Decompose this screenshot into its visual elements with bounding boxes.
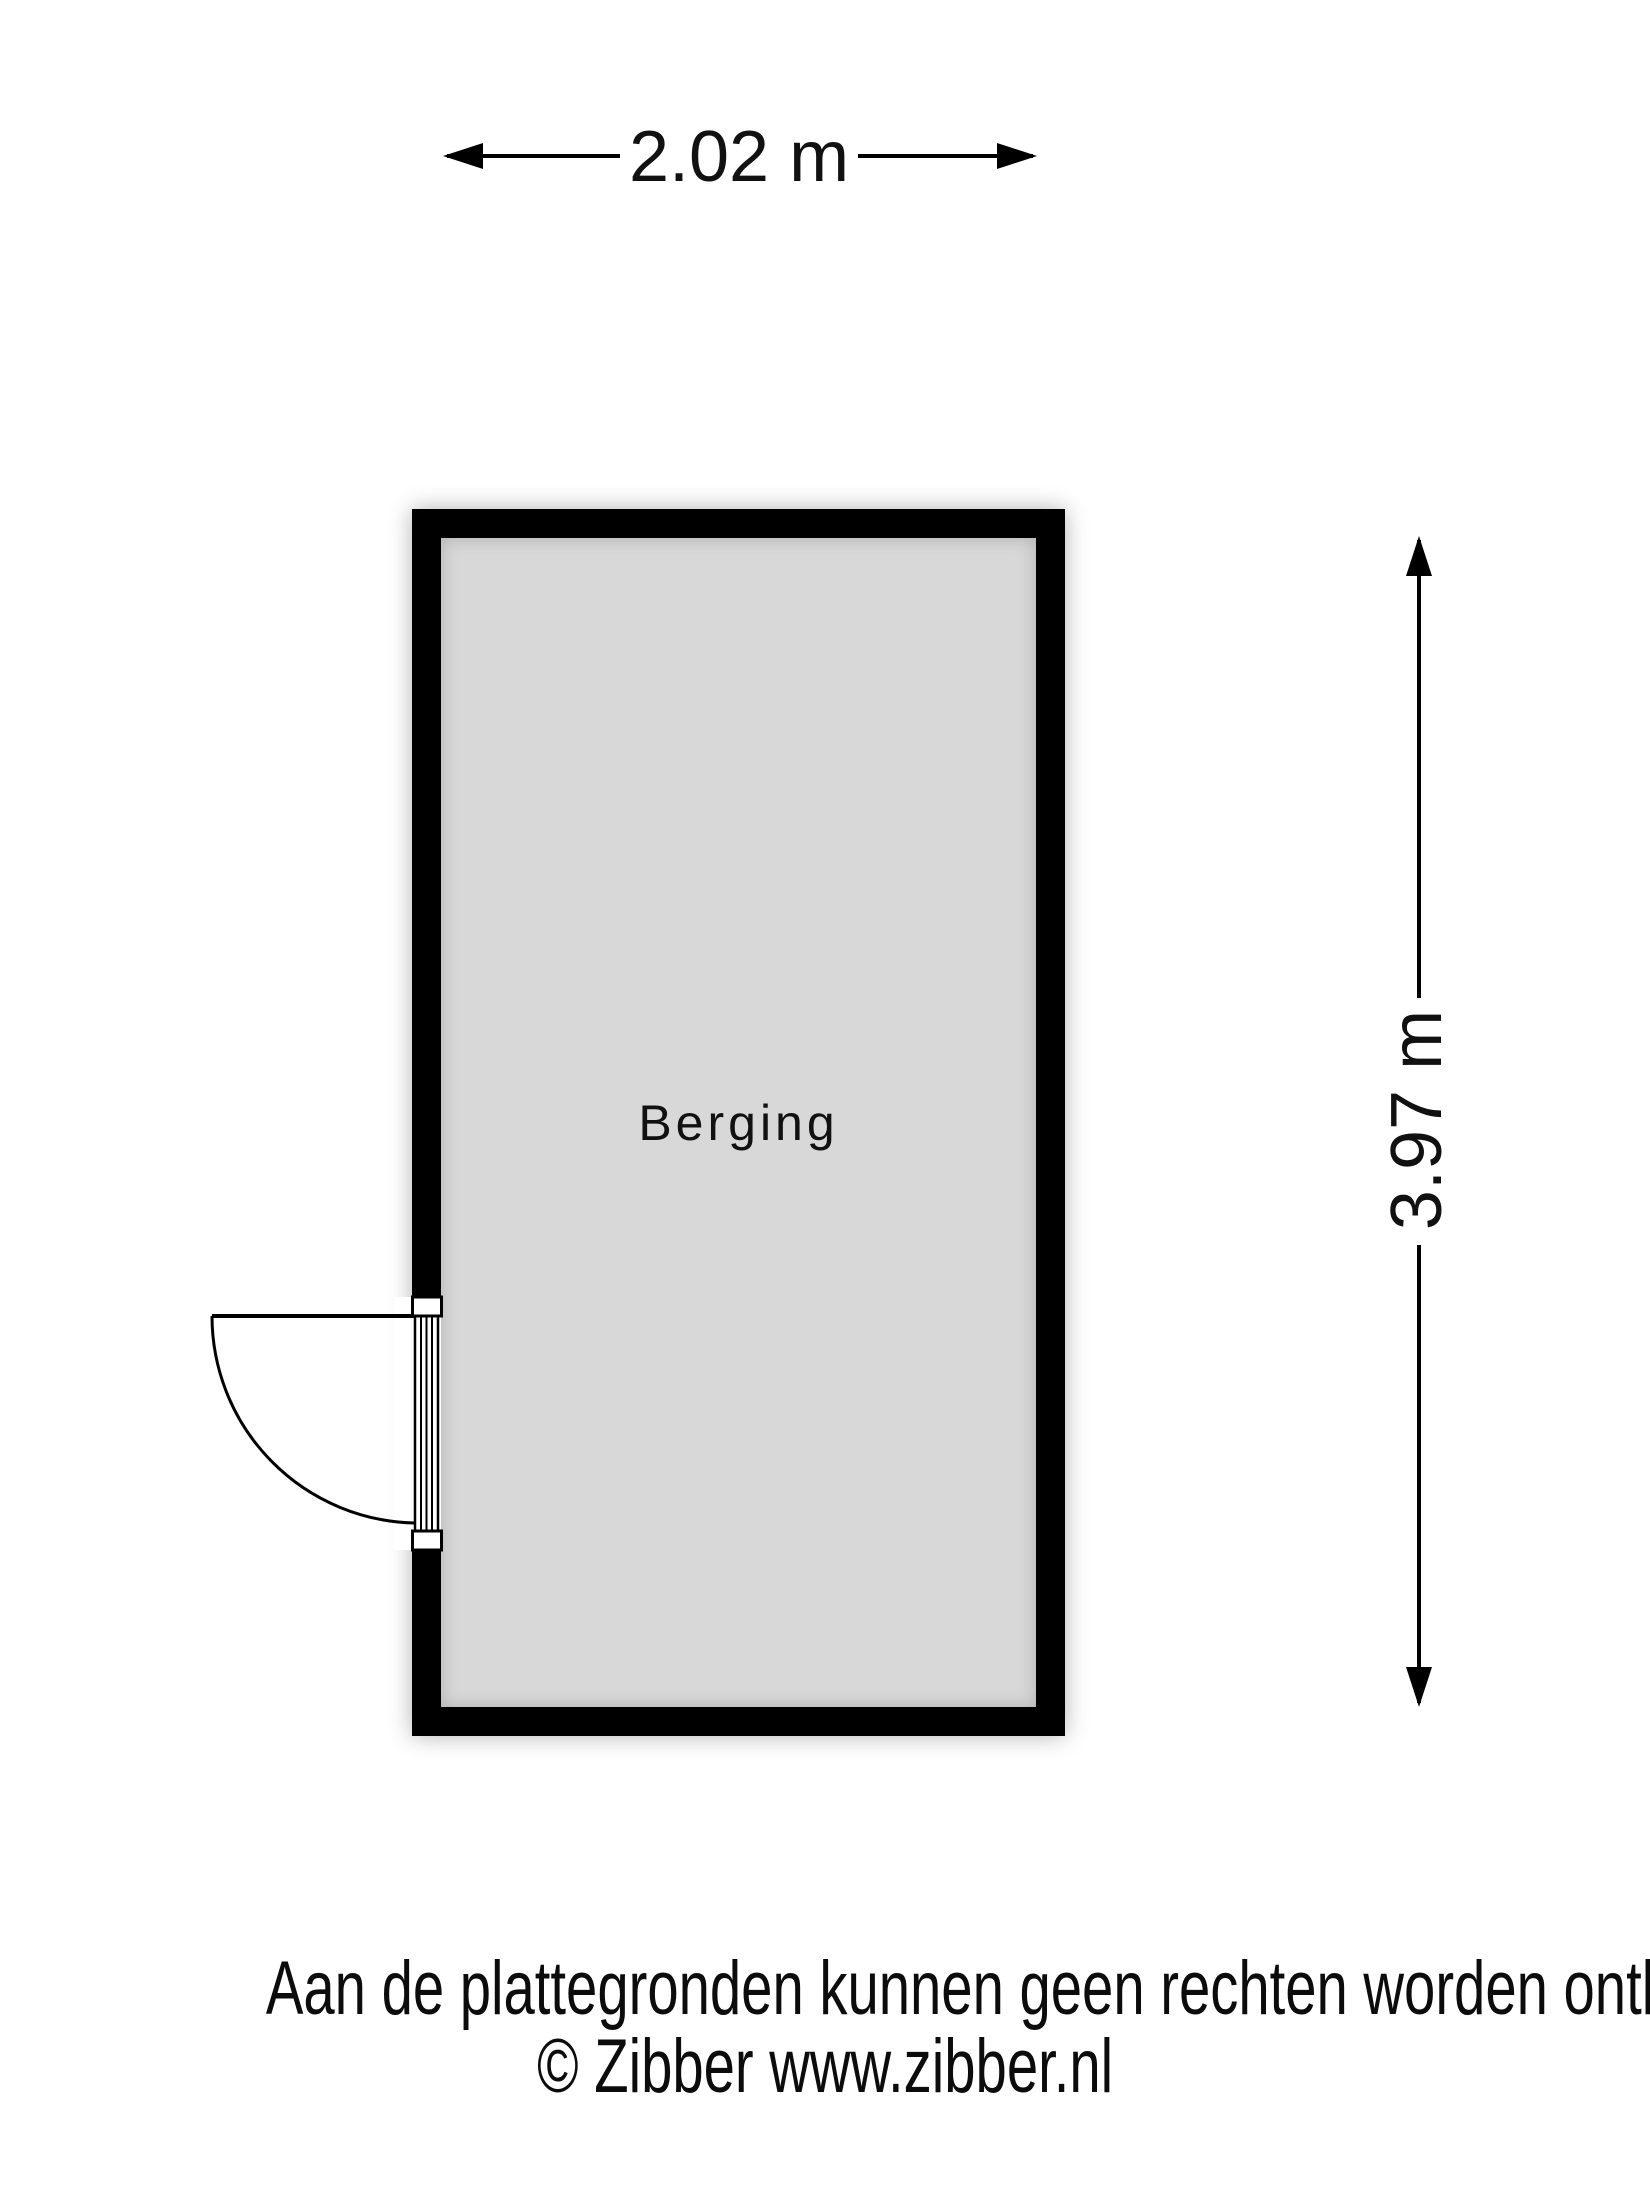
arrow-down-head-icon [1406,1667,1432,1707]
floorplan-page: Berging 2.02 m 3.97 m [0,0,1650,2200]
linework-layer [0,0,1650,2200]
door-jamb-bottom [413,1531,442,1550]
door-symbol [212,1297,442,1550]
height-dimension-arrow [1406,536,1432,1707]
width-dimension-arrow [443,143,1037,169]
footer-copyright-line: © Zibber www.zibber.nl [0,2028,1650,2106]
arrow-right-head-icon [997,143,1037,169]
footer-disclaimer-text: Aan de plattegronden kunnen geen rechten… [266,1950,1650,2028]
footer-disclaimer-line: Aan de plattegronden kunnen geen rechten… [0,1950,1650,2028]
door-swing-arc [212,1316,415,1523]
footer: Aan de plattegronden kunnen geen rechten… [0,1950,1650,2106]
door-jamb-top [413,1297,442,1316]
footer-copyright-text: © Zibber www.zibber.nl [537,2028,1113,2106]
